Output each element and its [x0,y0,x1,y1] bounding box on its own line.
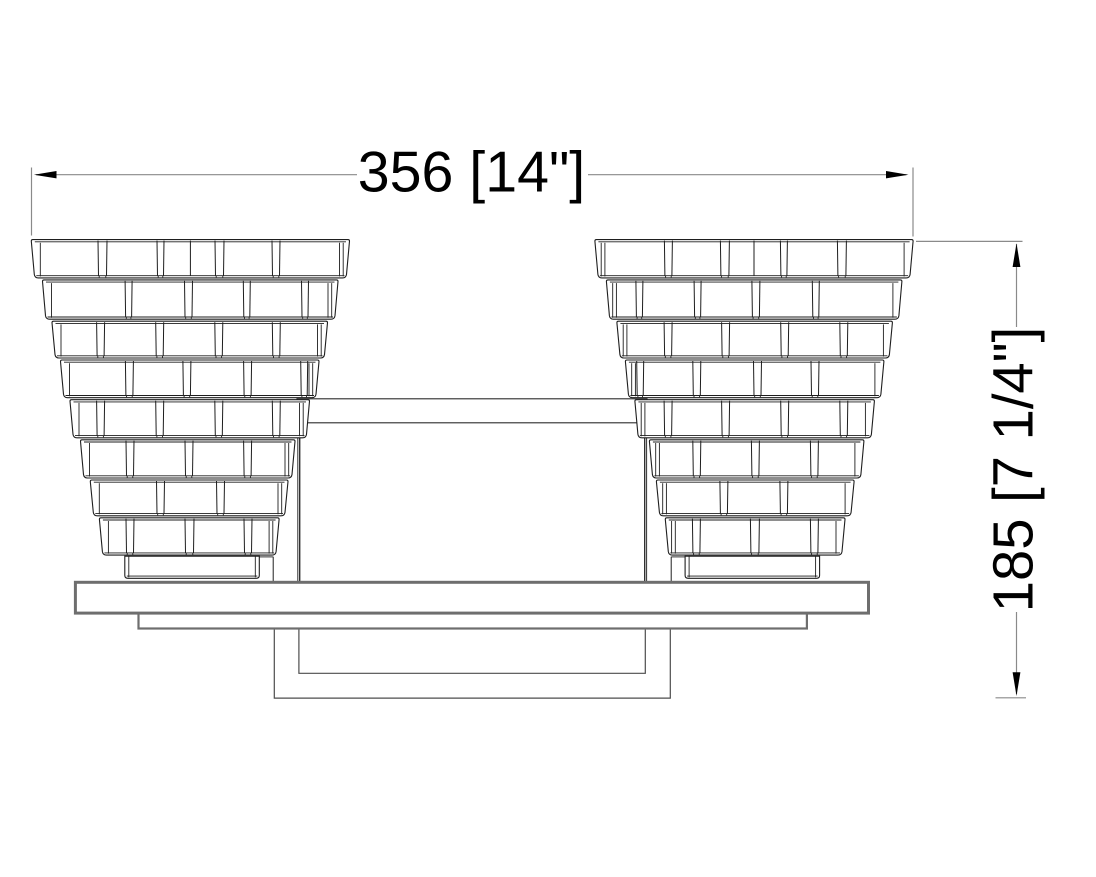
svg-text:185 [7 1/4"]: 185 [7 1/4"] [982,327,1045,613]
svg-text:356 [14"]: 356 [14"] [358,140,585,204]
